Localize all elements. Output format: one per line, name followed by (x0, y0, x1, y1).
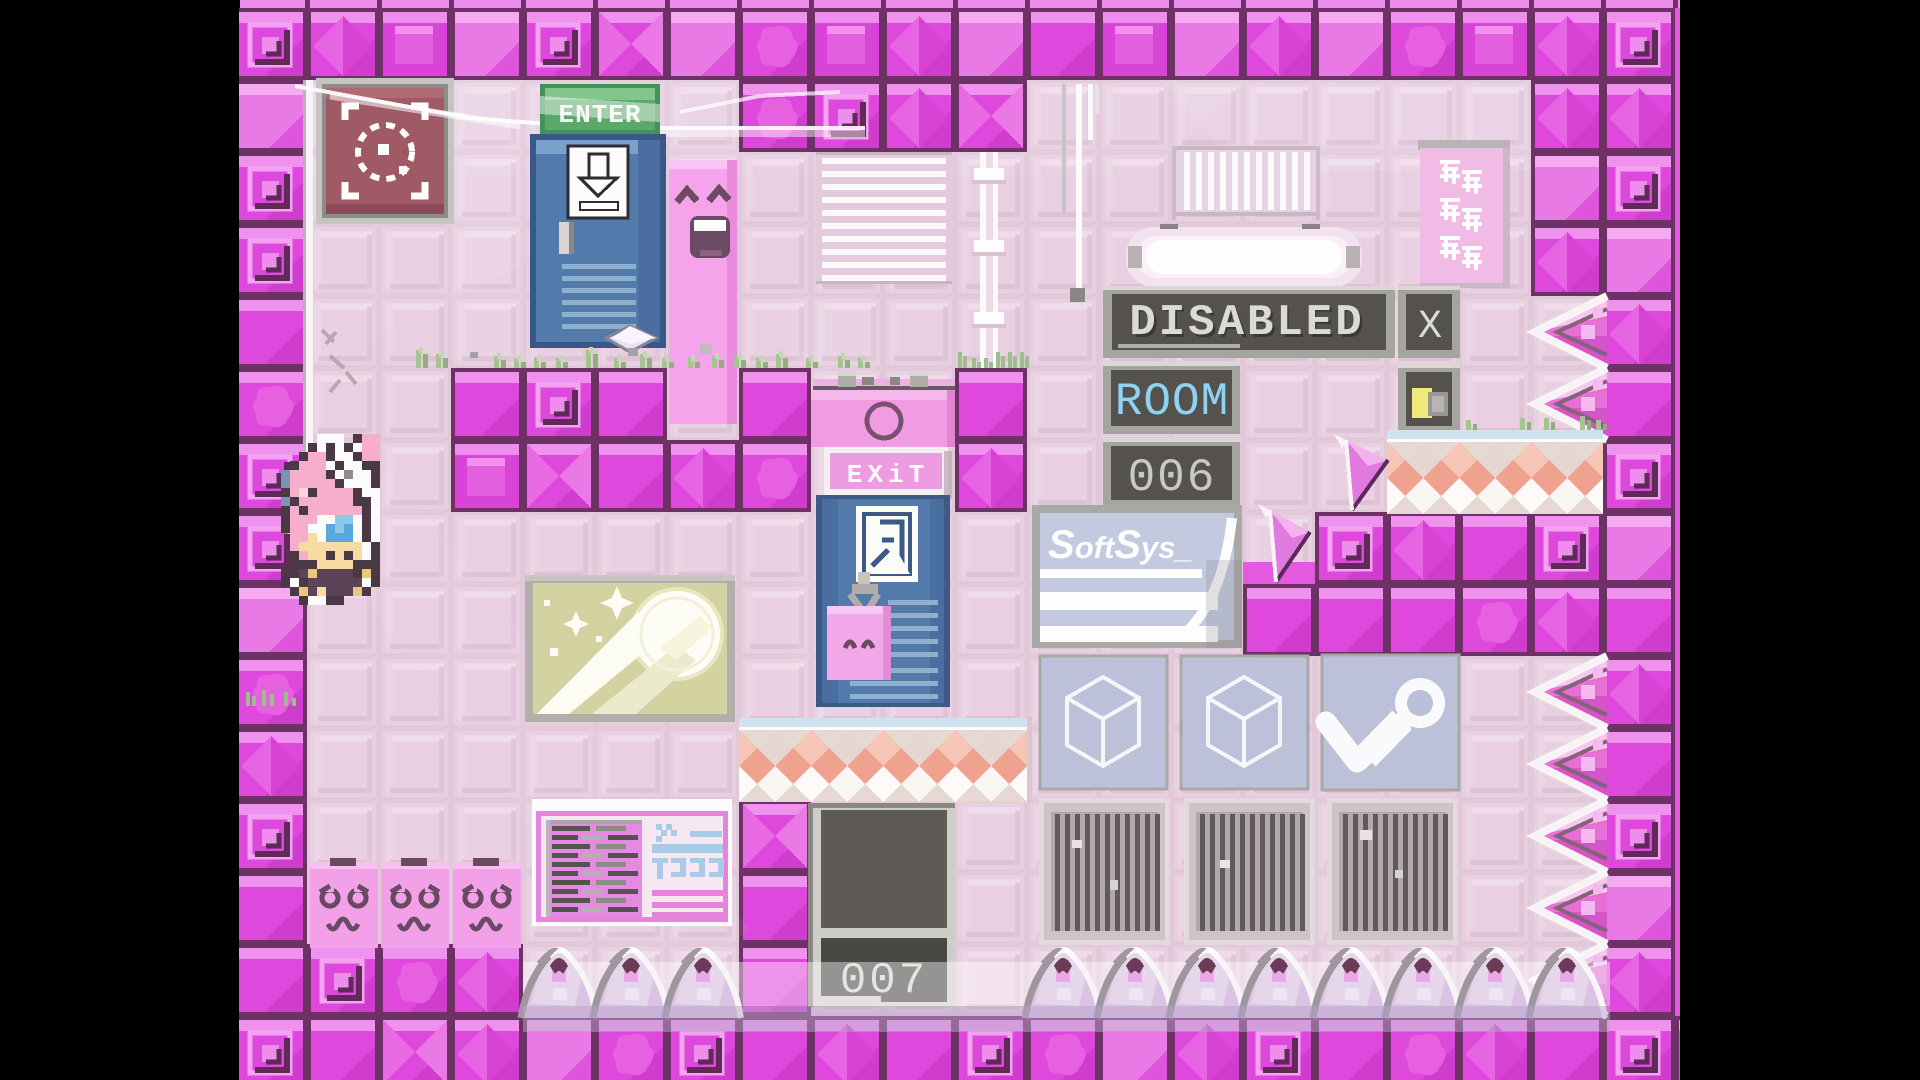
svg-text:SoftSys_: SoftSys_ (1048, 523, 1193, 567)
svg-text:006: 006 (1128, 452, 1217, 504)
svg-text:EXiT: EXiT (847, 460, 929, 490)
svg-text:DISABLED: DISABLED (1129, 298, 1364, 348)
svg-text:X: X (1418, 305, 1442, 350)
svg-text:ROOM: ROOM (1115, 376, 1229, 428)
